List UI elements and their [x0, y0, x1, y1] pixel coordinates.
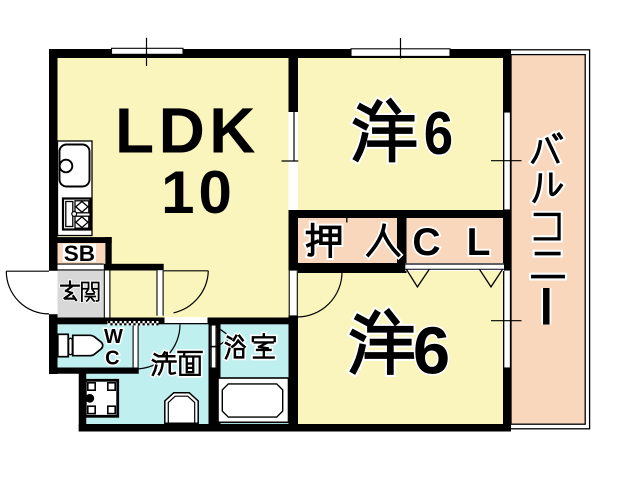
- svg-text:L: L: [467, 221, 491, 264]
- svg-text:6: 6: [424, 100, 453, 167]
- svg-text:SB: SB: [64, 241, 95, 266]
- svg-text:W: W: [104, 326, 123, 348]
- svg-text:C: C: [105, 348, 119, 370]
- svg-text:C: C: [412, 221, 440, 264]
- svg-text:6: 6: [413, 314, 450, 389]
- svg-text:LDK: LDK: [115, 95, 260, 167]
- svg-text:10: 10: [161, 159, 236, 226]
